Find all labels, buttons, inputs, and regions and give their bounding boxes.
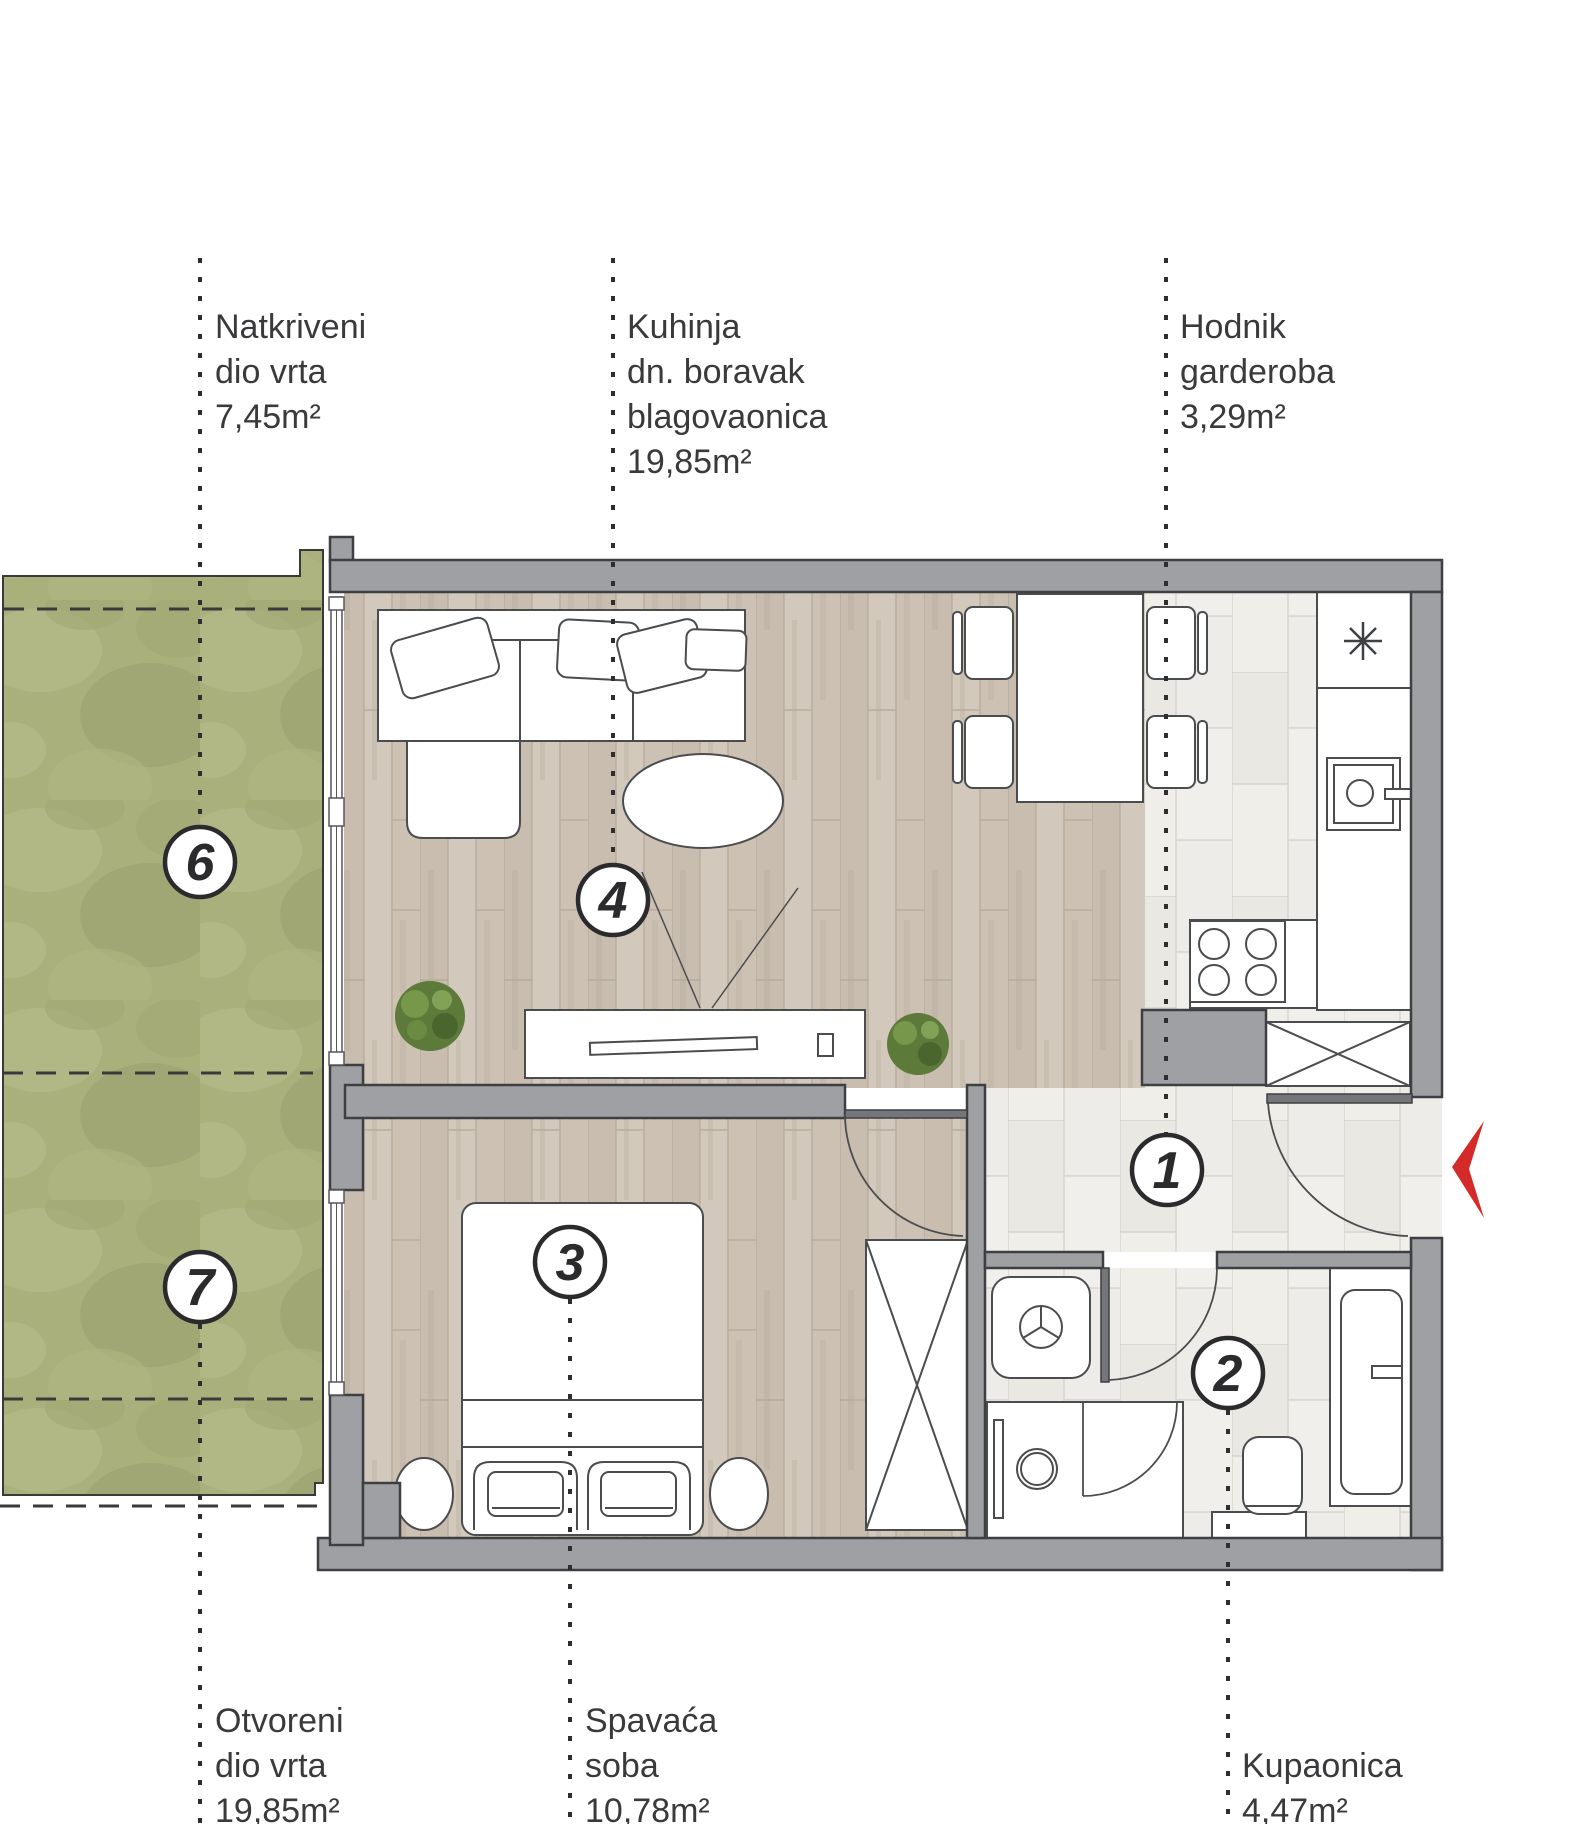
label-otvoreni-dio-vrta: Otvoreni dio vrta 19,85m²: [215, 1702, 344, 1824]
wall-corner-step: [363, 1483, 400, 1538]
label-kupaonica: Kupaonica 4,47m²: [1242, 1747, 1403, 1824]
label-kuhinja-dnevni-boravak: Kuhinja dn. boravak blagovaonica 19,85m²: [627, 308, 827, 481]
svg-text:Hodnik: Hodnik: [1180, 308, 1287, 346]
badge-number-1: 1: [1153, 1142, 1182, 1200]
tv-bracket: [818, 1034, 833, 1056]
wall-right-lower: [1411, 1238, 1442, 1570]
badge-living: 4: [578, 865, 648, 935]
svg-text:4,47m²: 4,47m²: [1242, 1792, 1348, 1824]
badge-number-6: 6: [186, 834, 216, 892]
svg-text:Otvoreni: Otvoreni: [215, 1702, 344, 1740]
sink-tap: [1385, 789, 1411, 799]
svg-text:7,45m²: 7,45m²: [215, 398, 321, 436]
badge-covered-garden: 6: [165, 827, 235, 897]
floor-plan-page: 1 2 3 4 6 7 Natkriveni dio vrta 7,45m²: [0, 0, 1584, 1824]
badge-number-4: 4: [598, 872, 628, 930]
vanity-cabinet: [987, 1402, 1183, 1538]
wall-right-upper: [1411, 592, 1442, 1097]
wall-left-bottom-stub: [330, 1395, 363, 1545]
stove: [1190, 921, 1285, 1002]
wall-bathroom-top-left: [985, 1252, 1103, 1268]
kitchen-sink: [1327, 758, 1411, 830]
badge-hallway: 1: [1132, 1135, 1202, 1205]
label-hodnik-garderoba: Hodnik garderoba 3,29m²: [1180, 308, 1335, 436]
svg-text:19,85m²: 19,85m²: [627, 443, 752, 481]
plant-left: [395, 981, 465, 1051]
wall-top-left-tab: [330, 537, 353, 562]
svg-text:garderoba: garderoba: [1180, 353, 1335, 391]
rug: [623, 754, 783, 848]
svg-text:10,78m²: 10,78m²: [585, 1792, 710, 1824]
nightstand-right: [710, 1458, 768, 1530]
svg-text:Natkriveni: Natkriveni: [215, 308, 366, 346]
bathtub: [1330, 1268, 1412, 1506]
svg-text:blagovaonica: blagovaonica: [627, 398, 827, 436]
wall-living-bedroom: [345, 1085, 845, 1118]
label-natkriveni-dio-vrta: Natkriveni dio vrta 7,45m²: [215, 308, 366, 436]
svg-text:Spavaća: Spavaća: [585, 1702, 717, 1740]
svg-text:Kupaonica: Kupaonica: [1242, 1747, 1403, 1785]
svg-text:19,85m²: 19,85m²: [215, 1792, 340, 1824]
dining-table: [1017, 594, 1143, 802]
entrance-arrow-icon: [1452, 1121, 1484, 1218]
grass-lawn: [3, 550, 323, 1495]
shower: [992, 1277, 1090, 1378]
towel-rail: [994, 1420, 1003, 1518]
wall-bottom: [318, 1538, 1442, 1570]
badge-bathroom: 2: [1193, 1338, 1263, 1408]
entry-recess-tile: [1411, 1097, 1442, 1238]
svg-text:dio vrta: dio vrta: [215, 353, 327, 391]
badge-number-2: 2: [1213, 1345, 1243, 1403]
floor-plan-svg: 1 2 3 4 6 7 Natkriveni dio vrta 7,45m²: [0, 0, 1584, 1824]
svg-text:Kuhinja: Kuhinja: [627, 308, 741, 346]
badge-number-3: 3: [556, 1234, 585, 1292]
svg-text:dio vrta: dio vrta: [215, 1747, 327, 1785]
wall-bedroom-right: [967, 1085, 985, 1538]
badge-number-7: 7: [186, 1259, 217, 1317]
svg-text:3,29m²: 3,29m²: [1180, 398, 1286, 436]
badge-open-garden: 7: [165, 1252, 235, 1322]
svg-text:dn. boravak: dn. boravak: [627, 353, 806, 391]
badge-bedroom: 3: [535, 1227, 605, 1297]
svg-text:soba: soba: [585, 1747, 659, 1785]
garden-area: [0, 550, 330, 1506]
bedroom-furniture: [395, 1203, 968, 1535]
bathtub-tap: [1372, 1366, 1402, 1378]
hallway-wardrobe: [1266, 1022, 1410, 1086]
bedroom-wardrobe: [866, 1240, 968, 1530]
wall-kitchen-hall: [1142, 1010, 1266, 1085]
wall-bathroom-top-right: [1217, 1252, 1411, 1268]
nightstand-left: [395, 1458, 453, 1530]
wall-top: [330, 560, 1442, 592]
label-spavaca-soba: Spavaća soba 10,78m²: [585, 1702, 717, 1824]
sofa-chaise: [407, 741, 520, 838]
windows: [329, 597, 344, 1395]
plant-right: [887, 1013, 949, 1075]
